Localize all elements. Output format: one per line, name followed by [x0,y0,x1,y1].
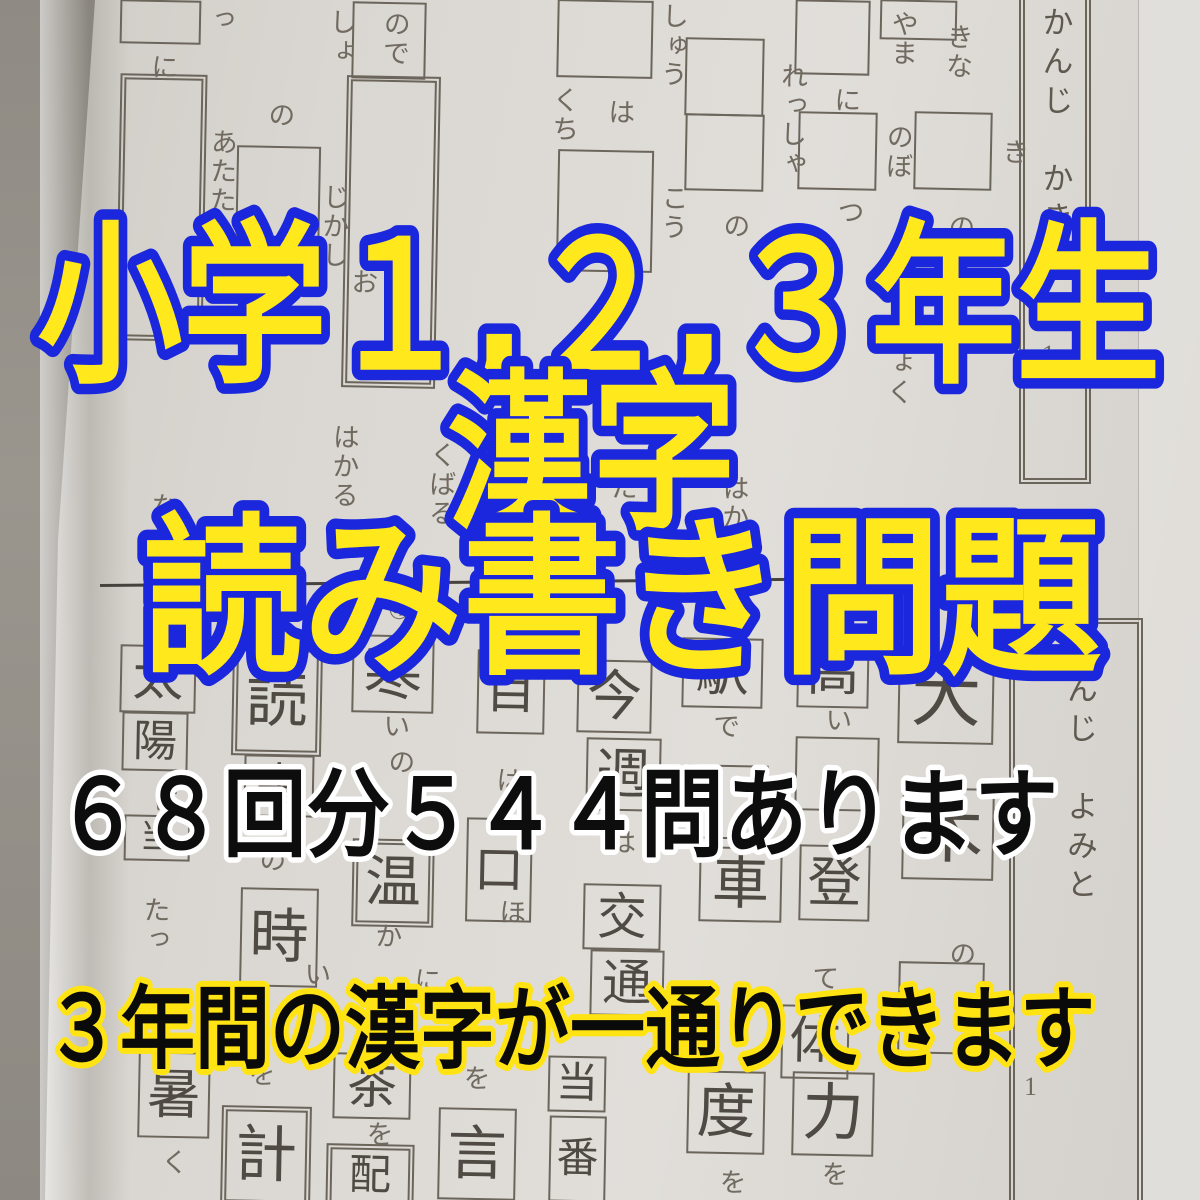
subtext-coverage: ３年間の漢字が一通りできます [45,977,1095,1082]
photo-of-kanji-worksheets: かんじ かき 1 っしょのでにのしゅうくちはれっしゃにやまのぼきなきのこうのつあ… [0,0,1200,1200]
headline-yomikaki: 読み書き問題 [143,498,1101,699]
subtext-problem-count: ６８回分５４４問あります [56,759,1058,871]
promo-text-overlay: 小学１,２,３年生 漢字 読み書き問題 ６８回分５４４問あります ３年間の漢字が… [0,0,1200,1200]
